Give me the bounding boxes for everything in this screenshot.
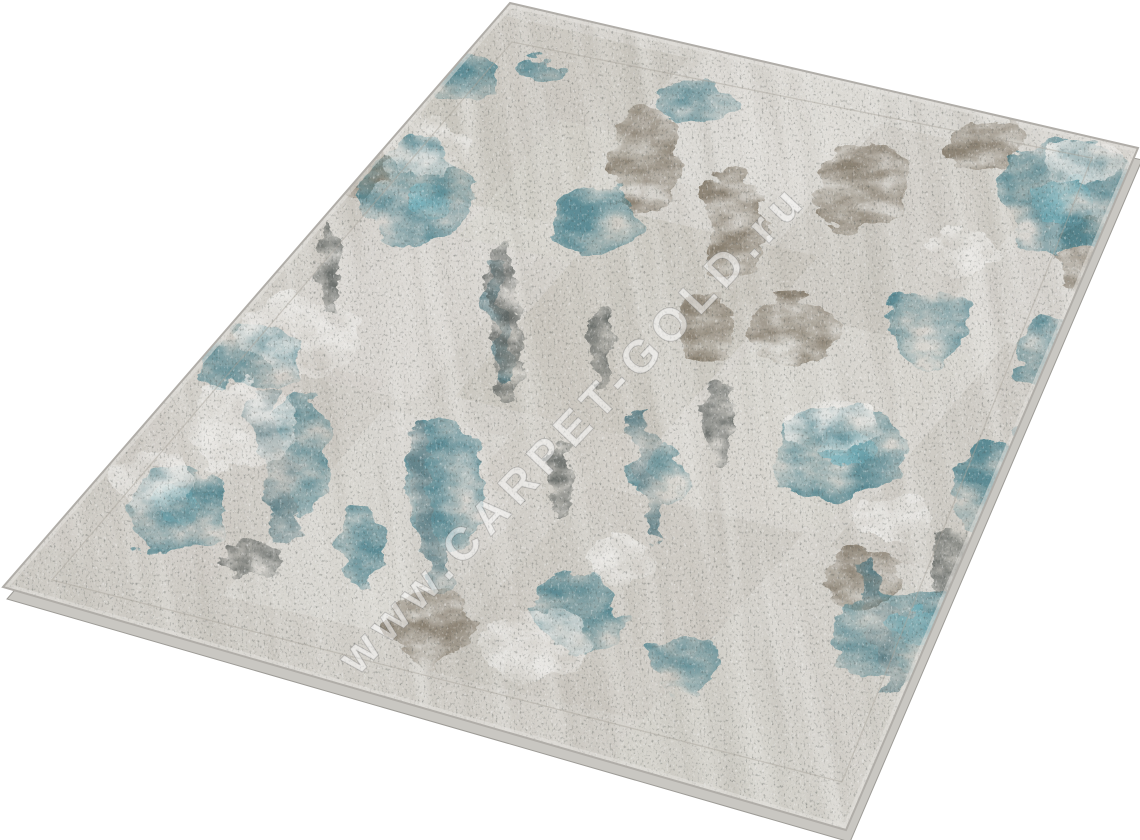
product-photo-stage: www.CARPET-GOLD.ru	[0, 0, 1140, 840]
rug-product-image: www.CARPET-GOLD.ru	[0, 0, 1140, 840]
